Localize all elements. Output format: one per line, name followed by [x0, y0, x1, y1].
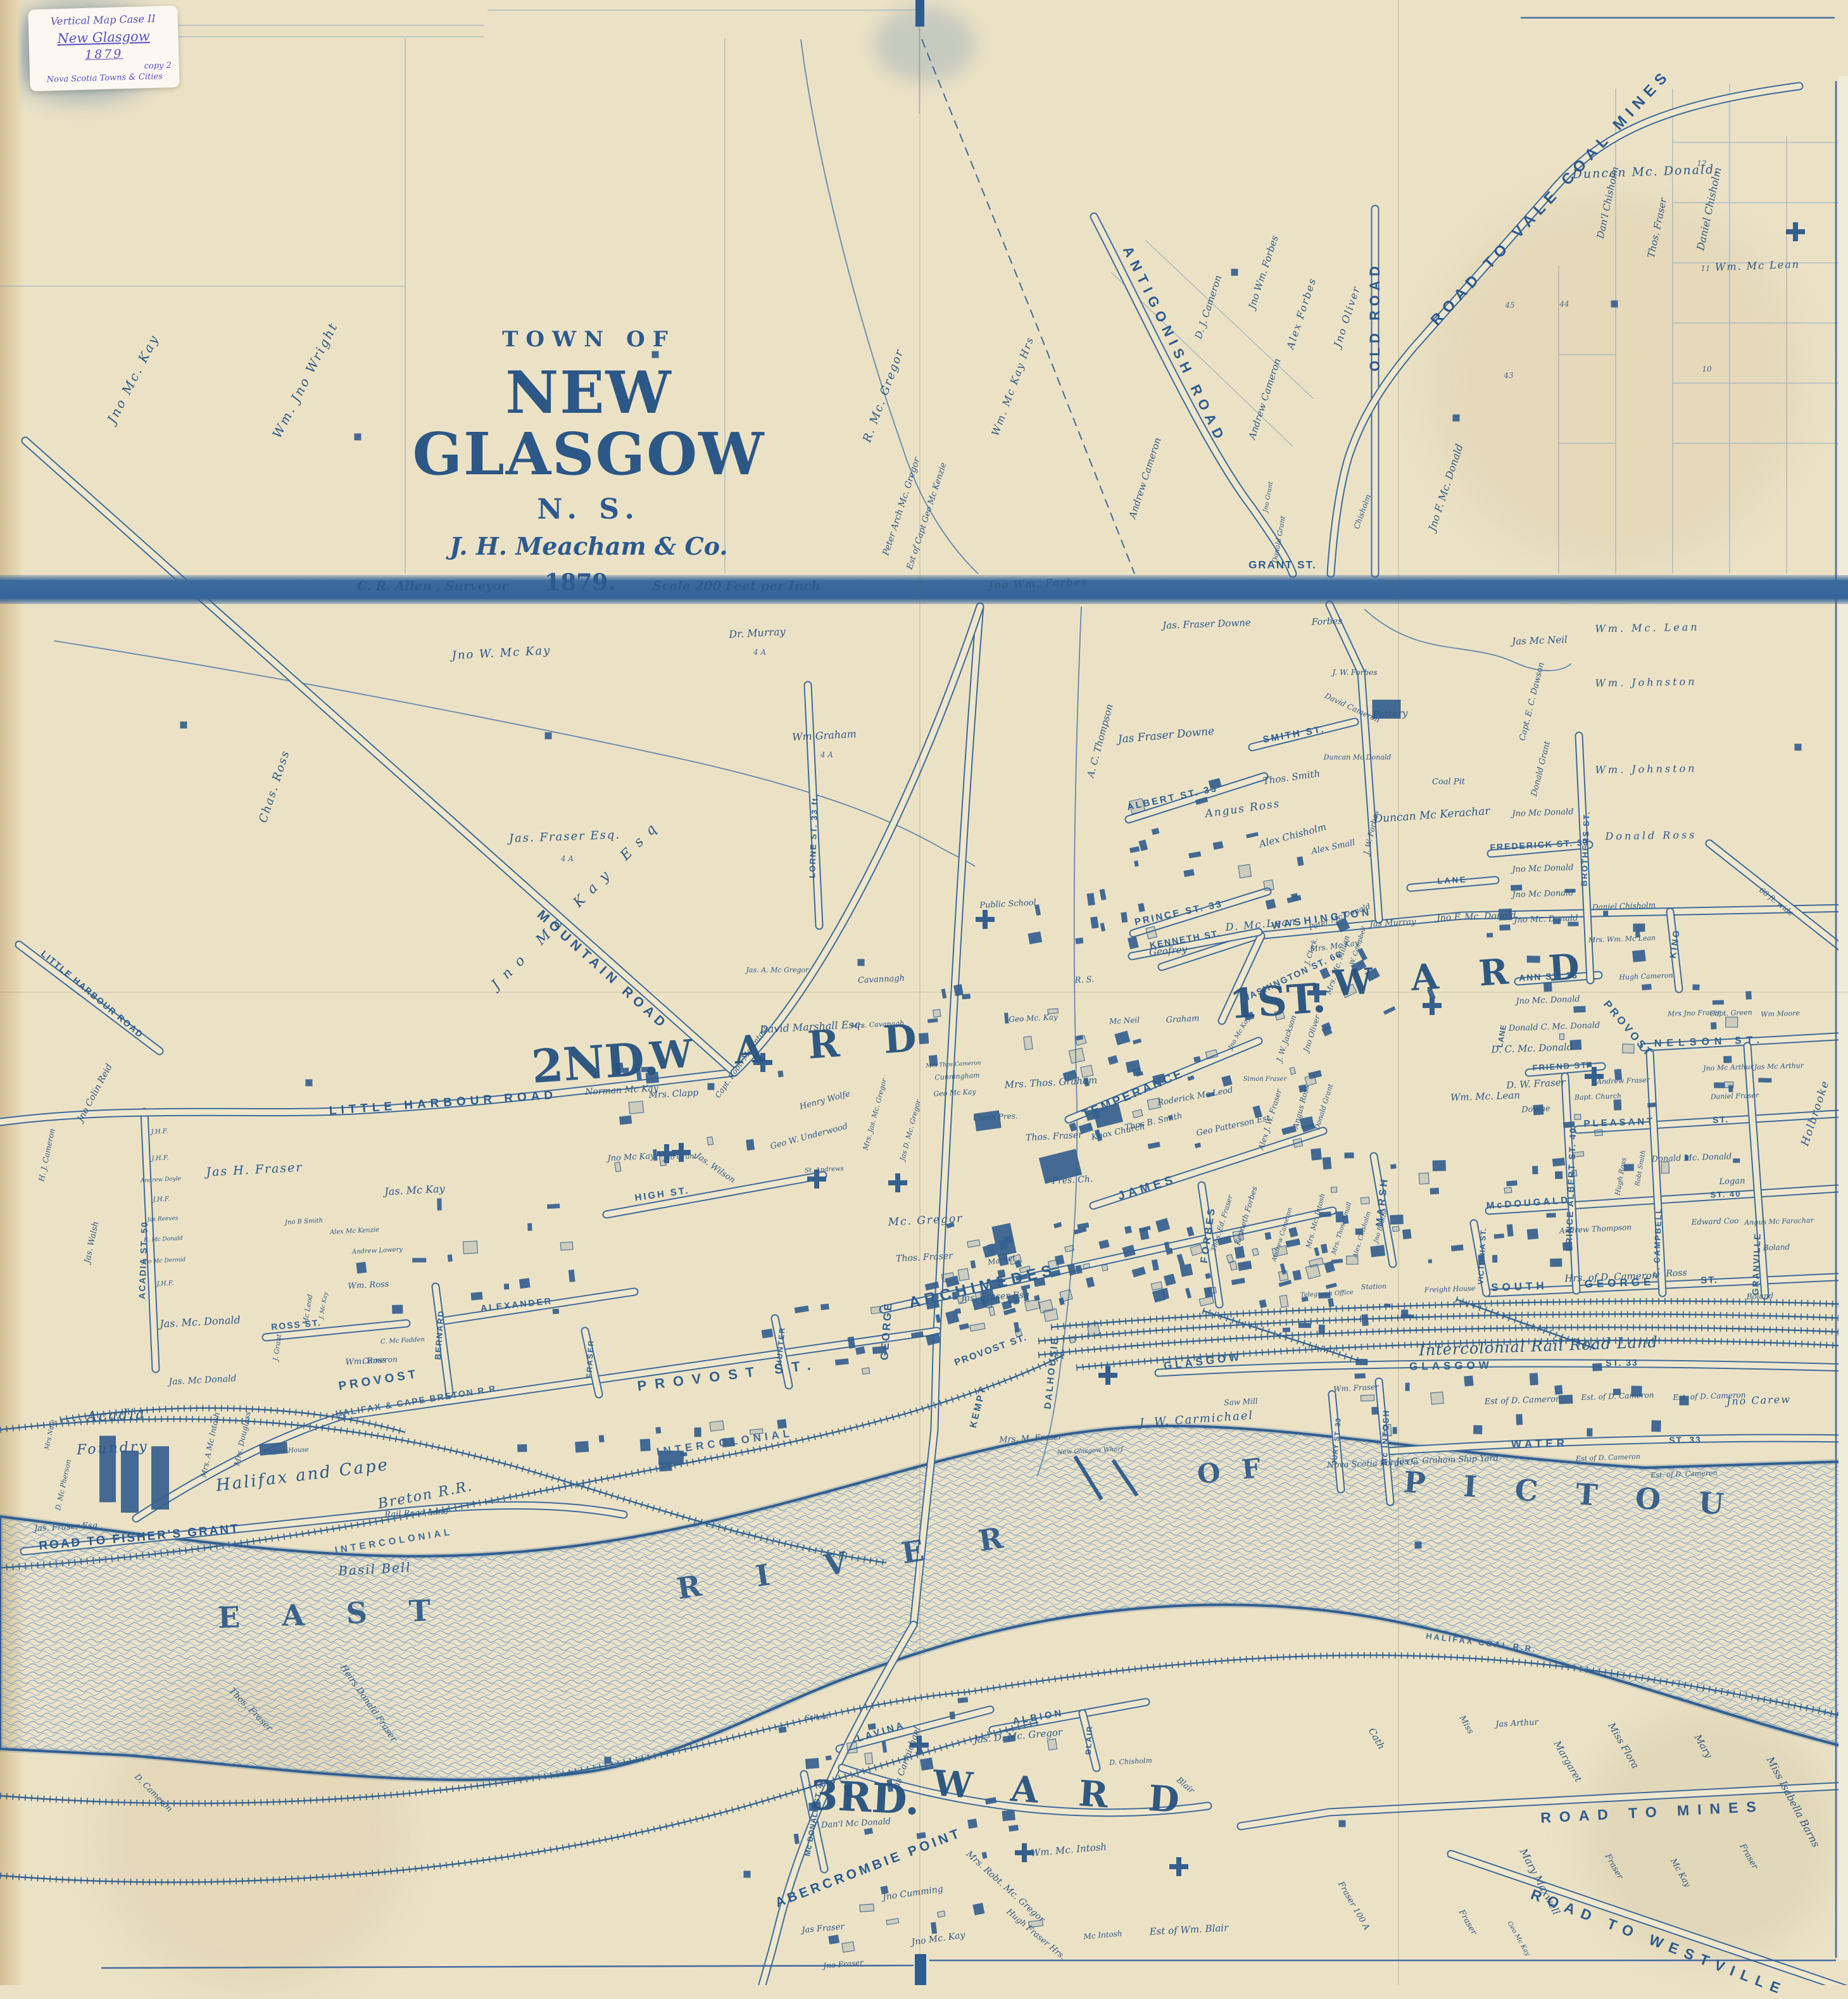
map-label: Mc Neil: [1109, 1016, 1140, 1026]
map-label: Jas. D. Mc. Gregor: [973, 1727, 1062, 1744]
map-label: Geofrey: [1148, 945, 1187, 957]
title-scale: Scale 200 Feet per Inch: [653, 578, 820, 593]
map-label: Mrs. Clapp: [648, 1088, 698, 1100]
map-label: Simon Fraser: [1243, 1076, 1287, 1083]
map-label: 60 ft. wide: [1758, 886, 1795, 917]
map-label: Mrs. Wm. Mc Lean: [1588, 935, 1656, 944]
map-label: Jno Fraser: [823, 1958, 864, 1970]
map-label: Duncan Mc Kerachar: [1374, 806, 1490, 825]
map-label: Ross: [1666, 1268, 1687, 1278]
map-label: ALBION: [1012, 1708, 1065, 1727]
title-publisher: J. H. Meacham & Co.: [353, 532, 824, 560]
map-label: Union Pres.: [972, 1112, 1018, 1122]
map-label: Daniel Fraser: [1711, 1092, 1759, 1100]
map-label: Boland: [1747, 1292, 1774, 1300]
map-label: Jas Fraser Downe: [1117, 726, 1215, 745]
title-province: N. S.: [353, 493, 824, 526]
map-label: Graham: [1166, 1014, 1199, 1025]
map-label: Jno Mc Donald: [1512, 864, 1574, 874]
map-label: Est of Wm. Blair: [1149, 1923, 1228, 1937]
map-label: Mrs. M. Fraser: [999, 1433, 1062, 1444]
map-label: Wm. Mc. Intosh: [1030, 1842, 1107, 1858]
map-label: RIVER: [675, 1515, 1060, 1604]
map-label: OF: [1196, 1453, 1283, 1488]
map-label: FRASER: [585, 1339, 594, 1378]
map-label: Fraser: [1457, 1908, 1478, 1936]
map-label: Wm. Johnston: [1595, 677, 1697, 689]
map-label: Margaret: [1552, 1739, 1583, 1784]
archival-line-title: New Glasgow: [36, 28, 171, 47]
map-label: Jno Mc Dermid: [142, 1258, 185, 1266]
map-label: WARD: [932, 1765, 1221, 1821]
map-label: Edward Coo: [1691, 1217, 1738, 1227]
map-label: Jas D. Mc. Gregor: [899, 1099, 922, 1162]
map-label: BERNARD: [434, 1309, 445, 1360]
map-label: Station: [1361, 1283, 1387, 1290]
map-label: Geo Mc Kay: [933, 1088, 976, 1098]
map-label: 2ND.: [530, 1035, 660, 1090]
map-label: New Glasgow Wharf: [1057, 1446, 1123, 1456]
map-label: DALHOUSIE: [1043, 1336, 1060, 1409]
map-label: ROAD TO WESTVILLE: [1529, 1887, 1788, 1998]
map-label: ABERCROMBIE POINT: [774, 1826, 964, 1910]
map-label: ALEXANDER: [481, 1296, 553, 1313]
map-label: Chisholm: [1353, 493, 1373, 530]
map-label: Jas. Mc Donald: [168, 1374, 237, 1387]
map-label: Jas. Fraser Esq: [961, 1290, 1029, 1303]
map-label: Angus Ross: [1292, 1084, 1311, 1129]
map-label: Andrew Cameron: [1128, 436, 1162, 519]
map-label: Est of D. Cameron: [1484, 1395, 1561, 1406]
map-label: Andrew Fraser: [1597, 1076, 1650, 1085]
map-label: D. J. Cameron: [1194, 274, 1224, 340]
map-label: Est. of D. Cameron: [1650, 1470, 1718, 1479]
map-label: FRIEND ST.: [1532, 1061, 1590, 1072]
map-label: Jno Wm. Forbes: [988, 577, 1088, 590]
map-label: D. Chisholm: [1109, 1757, 1152, 1767]
archival-line-series: Nova Scotia Towns & Cities: [37, 72, 172, 85]
map-label: Coal Pit: [1432, 778, 1465, 786]
map-label: KING: [1668, 928, 1681, 959]
map-label: Freight House: [1424, 1285, 1476, 1294]
map-label: Mrs. Mc. Intosh: [1305, 1193, 1326, 1249]
map-label: Miss Isabella Barns: [1765, 1755, 1821, 1849]
map-label: Jas Arthur: [1495, 1718, 1538, 1729]
map-label: Jno Grant: [1263, 481, 1274, 513]
map-label: Donald Ross: [1605, 830, 1697, 842]
map-label: Capt. E. C. Dawson: [1518, 662, 1545, 742]
title-block: TOWN OF NEW GLASGOW N. S. J. H. Meacham …: [353, 327, 824, 596]
map-label: Thos. Fraser: [1026, 1131, 1083, 1143]
map-label: Wm. Mc Kay Hrs: [990, 335, 1036, 437]
map-label: Geo Patterson Est: [1196, 1114, 1271, 1137]
map-label: Hugh Cameron: [1619, 972, 1673, 981]
archival-line-case: Vertical Map Case II: [36, 12, 170, 28]
map-label: C. CAMPBELL: [1652, 1207, 1663, 1277]
map-label: ROSS ST.: [271, 1318, 322, 1332]
map-label: LANE: [1437, 875, 1468, 885]
map-label: EAST: [217, 1594, 473, 1632]
map-label: Mrs. Thos. Graham: [1004, 1076, 1097, 1090]
map-label: Fraser 100 A: [1336, 1880, 1371, 1931]
title-surveyor: C. R. Allen , Surveyor: [357, 578, 508, 593]
map-label: Thos. Fraser: [227, 1686, 273, 1732]
archival-label: Vertical Map Case II New Glasgow 1879 co…: [28, 6, 180, 92]
map-label: OLD ROAD: [1368, 262, 1382, 371]
map-label: Logan: [1719, 1177, 1745, 1186]
map-label: LITTLE HARBOUR ROAD: [40, 949, 146, 1039]
map-label: Andrew Cameron: [1271, 1207, 1294, 1263]
map-label: 4 A: [753, 648, 766, 656]
map-label: ST. 33: [1669, 1435, 1702, 1445]
map-label: Heirs Donald Fraser: [339, 1663, 399, 1744]
map-label: Fraser: [1738, 1843, 1759, 1870]
map-label: J. W. Carmichael: [1139, 1410, 1254, 1430]
map-label: SOUTH: [1491, 1280, 1548, 1293]
map-label: Wm. Jno Wright: [270, 320, 340, 440]
map-label: Mc. Gregor: [888, 1213, 963, 1228]
map-label: 3RD.: [809, 1775, 921, 1822]
map-label: R. Mc. Gregor: [862, 348, 906, 444]
map-label: BLAIR: [1084, 1725, 1093, 1755]
map-label: Cath: [1366, 1727, 1386, 1751]
map-label: Wm. Johnston: [1595, 764, 1697, 776]
map-label: R. Mc Donald: [144, 1236, 183, 1244]
map-label: HALIFAX COAL R.R.: [1426, 1632, 1538, 1653]
map-label: LORNE ST. 33 ft.: [808, 793, 819, 878]
map-label: GLASGOW: [1409, 1359, 1493, 1372]
map-label: Daniel Chisholm: [1592, 901, 1656, 911]
map-label: J. Mc Kay: [319, 1292, 329, 1320]
map-label: GLASGOW: [1163, 1351, 1243, 1372]
map-label: Jno Mc Donald: [1512, 808, 1574, 818]
map-label: Mrs Nute: [44, 1419, 57, 1450]
map-label: Cavannagh: [858, 974, 905, 985]
map-label: J. Grant: [272, 1334, 283, 1361]
map-label: Forbes: [1312, 617, 1343, 627]
map-label: J.H.F.: [153, 1196, 170, 1203]
map-label: Mrs. A Mc Intosh: [199, 1411, 221, 1479]
map-label: Jos C. Graham Ship Yard: [1396, 1454, 1499, 1466]
map-label: GRANT ST.: [1248, 560, 1317, 571]
map-label: PROVOST: [1602, 999, 1655, 1059]
map-label: Jno Mc Kay: [607, 1152, 655, 1163]
map-label: Jno Oliver: [1333, 285, 1362, 349]
map-label: Jas H. Fraser: [206, 1162, 303, 1179]
map-label: Wm Graham: [792, 729, 857, 742]
map-label: Mc INTOSH: [1380, 1409, 1390, 1466]
map-label: Jno Grant: [663, 1152, 697, 1161]
map-label: School: [805, 1713, 829, 1722]
map-label: ST. 33: [1606, 1358, 1638, 1368]
map-label: Donald Mc. Donald: [1651, 1152, 1732, 1163]
map-label: ROAD TO MINES: [1540, 1799, 1765, 1825]
map-label: Market: [987, 1254, 1016, 1266]
labels-layer: 2ND.WARD1ST.WARD3RD.WARDEASTRIVEROFPICTO…: [0, 0, 1848, 1985]
map-label: Downe: [1521, 1104, 1550, 1114]
map-label: Foundry: [77, 1440, 149, 1458]
map-label: A. C. Thompson: [1086, 703, 1114, 779]
map-label: Wm. Ross: [345, 1356, 387, 1366]
map-label: Alex Forbes: [1285, 277, 1318, 351]
map-label: J.H.F.: [156, 1280, 173, 1287]
map-label: Boland: [1763, 1243, 1790, 1251]
map-label: Geo Mc Kay: [1505, 1920, 1530, 1957]
map-label: Wm. Mc Lean: [1715, 260, 1801, 273]
map-label: BROTHERS ST.: [1580, 810, 1590, 886]
map-label: Mrs. Douglass: [233, 1411, 252, 1466]
map-label: Mc Kay: [1669, 1857, 1692, 1888]
map-label: WATER: [1511, 1438, 1568, 1450]
map-label: FREDERICK ST. 33: [1490, 838, 1590, 852]
title-year: 1879.: [544, 569, 616, 596]
map-label: Angus Mc Farachar: [1744, 1217, 1814, 1227]
map-label: J.H.F.: [151, 1155, 168, 1162]
map-label: Mary: [1693, 1733, 1714, 1760]
title-new-glasgow: NEW GLASGOW: [353, 362, 824, 484]
map-label: Thos. Fraser: [896, 1252, 953, 1264]
map-label: Intercolonial Rail Road Land: [1419, 1334, 1658, 1358]
map-label: GEORGE: [879, 1301, 893, 1361]
map-label: St. Andrews: [805, 1166, 844, 1174]
map-label: Wm. Fraser: [1333, 1383, 1379, 1393]
map-label: Geo Mc. Kay: [1009, 1013, 1058, 1023]
map-label: Thos. Fraser: [1647, 197, 1669, 258]
map-label: Public School: [979, 899, 1036, 910]
map-label: Jas. Fraser Esq: [34, 1522, 98, 1533]
map-label: Jas Reeves: [147, 1216, 178, 1223]
map-label: Hugh Ross: [1614, 1157, 1627, 1195]
map-label: Mrs. Thos. Small: [1331, 1201, 1354, 1255]
map-label: INTERCOLONIAL: [334, 1527, 453, 1555]
map-label: 4 A: [820, 751, 833, 759]
map-label: Acadia: [87, 1408, 147, 1425]
map-label: D. W. Fraser: [1506, 1078, 1566, 1090]
map-label: Jno Mc. Donald: [1516, 995, 1580, 1006]
map-label: SMITH ST.: [1262, 724, 1326, 745]
map-label: Wm. Ross: [348, 1280, 389, 1290]
map-label: 45: [1505, 301, 1514, 309]
map-label: Mrs. Jas. Mc. Gregor: [862, 1078, 888, 1151]
map-label: Cunningham: [934, 1072, 980, 1081]
map-label: Jas Mc Neil: [1512, 635, 1568, 646]
map-label: R. S.: [1074, 976, 1094, 985]
map-label: Saw Mill: [1224, 1397, 1258, 1407]
map-label: 44: [1559, 300, 1569, 308]
map-label: D. Mc Pherson: [54, 1459, 72, 1511]
map-label: Capt. Green: [1709, 1009, 1752, 1017]
map-label: JURY ST. 33: [1331, 1418, 1342, 1465]
map-label: Mc Intosh: [1083, 1929, 1122, 1940]
map-label: INTERCOLONIAL: [656, 1427, 794, 1457]
map-label: Holbrooke: [1800, 1079, 1832, 1147]
map-label: Thos B. Smith: [1124, 1112, 1183, 1132]
map-label: KEMPT: [969, 1385, 988, 1428]
map-label: Jas. Mc. Donald: [160, 1315, 241, 1330]
map-label: PLEASANT: [1583, 1117, 1655, 1129]
map-label: Geo W. Underwood: [769, 1122, 848, 1151]
map-label: HIGH ST.: [634, 1185, 691, 1202]
map-label: Miss Flora: [1606, 1721, 1640, 1770]
map-label: Jas. Fraser Esq.: [509, 829, 621, 845]
map-label: J. W. Forbes: [1333, 669, 1378, 676]
map-label: Jas. Fraser Downe: [1162, 618, 1251, 631]
archival-line-year: 1879: [37, 46, 172, 63]
map-label: Wm. Mc. Lean: [1595, 622, 1700, 634]
map-label: 4 A: [561, 855, 574, 862]
map-label: Jas Murray: [1369, 918, 1416, 929]
map-label: Rail Road Land: [384, 1508, 449, 1519]
map-label: Alex. Chisholm: [1352, 1211, 1373, 1259]
map-label: Jas Fraser: [801, 1923, 845, 1935]
map-label: Jno Mc. Kay: [911, 1931, 965, 1947]
map-label: Engine House: [263, 1447, 309, 1456]
map-label: D. Cameron: [133, 1773, 174, 1814]
map-label: Jno Mc. Kay: [105, 332, 161, 425]
map-label: Jas. Mc Kay: [384, 1184, 445, 1197]
map-label: ARCHIMEDES: [907, 1262, 1058, 1311]
map-label: Roderick Mc Leod: [1157, 1086, 1234, 1107]
map-label: D. Mc.Lean: [1225, 916, 1297, 933]
map-label: Basil Bell: [338, 1561, 412, 1577]
map-label: Jno F. Mc. Donald: [1436, 911, 1516, 923]
map-label: Jno Mc Arthur: [1703, 1063, 1754, 1072]
map-label: Breton R.R.: [377, 1480, 474, 1512]
map-label: Alex Mc Kenzie: [330, 1227, 380, 1236]
map-label: Jno Mc. Donald: [1514, 914, 1578, 925]
map-label: LAVINA: [856, 1720, 907, 1743]
map-label: PRINCE ST. 33: [1134, 899, 1224, 927]
map-label: ST. 40: [1710, 1190, 1741, 1199]
map-label: ST.: [1700, 1275, 1718, 1285]
map-label: Andrew Lowery: [352, 1247, 403, 1256]
map-label: Jno Cumming: [882, 1884, 943, 1901]
map-label: Wm Moore: [1761, 1009, 1800, 1018]
map-label: LITTLE HARBOUR ROAD: [329, 1089, 557, 1117]
map-label: Jno Mc Donald: [1512, 889, 1574, 899]
map-label: Jno B Smith: [285, 1218, 324, 1226]
map-label: Donald Grant: [1530, 740, 1552, 797]
map-label: 10: [1702, 365, 1711, 373]
map-label: Miss: [1458, 1714, 1475, 1735]
map-label: Jno Colin Reid: [76, 1063, 114, 1123]
map-label: Bapt. Church: [1575, 1092, 1622, 1101]
map-label: C. Mc Fadden: [380, 1337, 425, 1346]
map-label: Daniel Chisholm: [1695, 167, 1723, 251]
map-label: Henry Wolfe: [799, 1090, 852, 1111]
map-label: Angus Ross: [1205, 798, 1281, 819]
map-label: J.H.F.: [151, 1128, 168, 1135]
map-label: H. J. Cameron: [37, 1128, 56, 1182]
map-label: Jno F. Mc. Donald: [1427, 443, 1465, 532]
map-label: 11: [1700, 265, 1710, 272]
map-label: Mrs Thos Cameron: [926, 1061, 981, 1069]
map-label: Thos. Smith: [1262, 769, 1321, 786]
map-label: PROVOST: [337, 1368, 419, 1393]
map-label: NELSON ST.: [1654, 1035, 1765, 1049]
map-label: PROVOST ST.: [636, 1358, 819, 1394]
map-label: Donald Grant: [1271, 515, 1286, 564]
map-label: Donald Grant: [1314, 1083, 1335, 1130]
map-label: Telegraph Office: [1300, 1290, 1354, 1299]
map-label: Donald C. Mc. Donald: [1509, 1021, 1600, 1033]
map-label: ROAD TO VALE COAL MINES: [1428, 66, 1674, 329]
map-label: J. W. Forbes: [1362, 810, 1380, 855]
map-label: JAMES: [1117, 1173, 1178, 1202]
map-label: Wm. Mc. Lean: [1450, 1091, 1520, 1103]
map-label: David Cameron: [1324, 692, 1381, 724]
map-label: Est of D. Cameron: [1576, 1453, 1640, 1463]
map-label: Andrew Doyle: [141, 1176, 182, 1184]
map-label: Jas Mc Arthur: [1754, 1062, 1804, 1071]
map-label: Est. of D. Cameron: [1581, 1391, 1654, 1401]
map-label: Duncan Mc Donald: [1324, 754, 1392, 761]
map-label: Jno W. Mc Kay: [451, 645, 551, 662]
map-label: VICTORIA ST.: [1477, 1228, 1488, 1285]
map-label: Robt Smith: [1635, 1150, 1647, 1187]
map-label: Jno Wm. Forbes: [1247, 234, 1280, 310]
map-label: Dr. Murray: [729, 627, 786, 640]
map-label: Andrew Cameron: [1247, 357, 1282, 440]
map-label: 43: [1504, 372, 1513, 379]
map-label: Fraser: [1603, 1853, 1624, 1881]
map-label: Jas. Wilson: [695, 1152, 737, 1185]
map-label: Kenneth Forbes: [1233, 1185, 1259, 1246]
map-label: ST.: [1713, 1115, 1730, 1125]
map-label: Pres. Ch.: [1052, 1175, 1093, 1185]
map-label: Jas. A. Mc Gregor: [746, 967, 809, 974]
map-label: Jas. Walsh: [84, 1221, 101, 1264]
map-label: Alex Small: [1311, 838, 1355, 855]
map-label: McDOUGALD: [1486, 1195, 1570, 1211]
map-label: PROVOST ST.: [953, 1332, 1028, 1368]
map-label: 12: [1697, 160, 1706, 167]
map-label: GRANVILLE: [1751, 1232, 1761, 1295]
map-label: D. C. Mc. Donald: [1491, 1042, 1573, 1054]
title-town-of: TOWN OF: [353, 327, 824, 352]
map-label: Mary Maxwell: [1518, 1847, 1562, 1917]
map-label: Chas. Ross: [258, 748, 292, 824]
